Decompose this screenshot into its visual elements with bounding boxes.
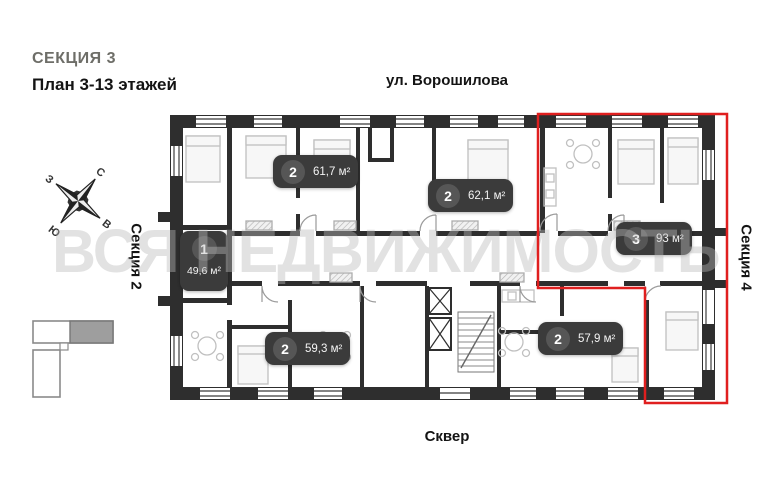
- room-count-circle: 2: [281, 160, 305, 184]
- apartment-badge-5[interactable]: 2 59,3 м²: [265, 332, 350, 365]
- apartment-area: 61,7 м²: [313, 166, 350, 178]
- room-count-circle: 2: [436, 184, 460, 208]
- compass-south-label: Ю: [46, 224, 62, 240]
- room-count-circle: 2: [273, 337, 297, 361]
- apartment-area: 93 м²: [656, 233, 684, 245]
- apartment-badge-1[interactable]: 1 49,6 м²: [180, 231, 228, 291]
- apartment-badge-4[interactable]: 3 93 м²: [616, 222, 692, 255]
- apartment-badge-2[interactable]: 2 61,7 м²: [273, 155, 358, 188]
- compass-rose: С В Ю З: [19, 144, 136, 262]
- room-count-circle: 1: [192, 236, 217, 261]
- apartment-area: 59,3 м²: [305, 343, 342, 355]
- windows-bottom: [200, 388, 694, 399]
- room-count-circle: 3: [624, 227, 648, 251]
- apartment-area: 57,9 м²: [578, 333, 615, 345]
- compass-north-label: С: [93, 165, 107, 179]
- elevator-shafts: [429, 288, 451, 350]
- compass-east-label: В: [100, 217, 114, 231]
- compass-west-label: З: [43, 173, 56, 187]
- apartment-badge-6[interactable]: 2 57,9 м²: [538, 322, 623, 355]
- floor-plan-page: С В Ю З СЕКЦИЯ 3 План 3-13 этажей ул. Во…: [0, 0, 784, 500]
- room-count-circle: 2: [546, 327, 570, 351]
- apartment-area: 62,1 м²: [468, 190, 505, 202]
- building-locator-map: [33, 321, 113, 397]
- current-section-highlight: [70, 321, 113, 343]
- apartment-badge-3[interactable]: 2 62,1 м²: [428, 179, 513, 212]
- staircase: [458, 312, 494, 372]
- apartment-area: 49,6 м²: [187, 265, 221, 277]
